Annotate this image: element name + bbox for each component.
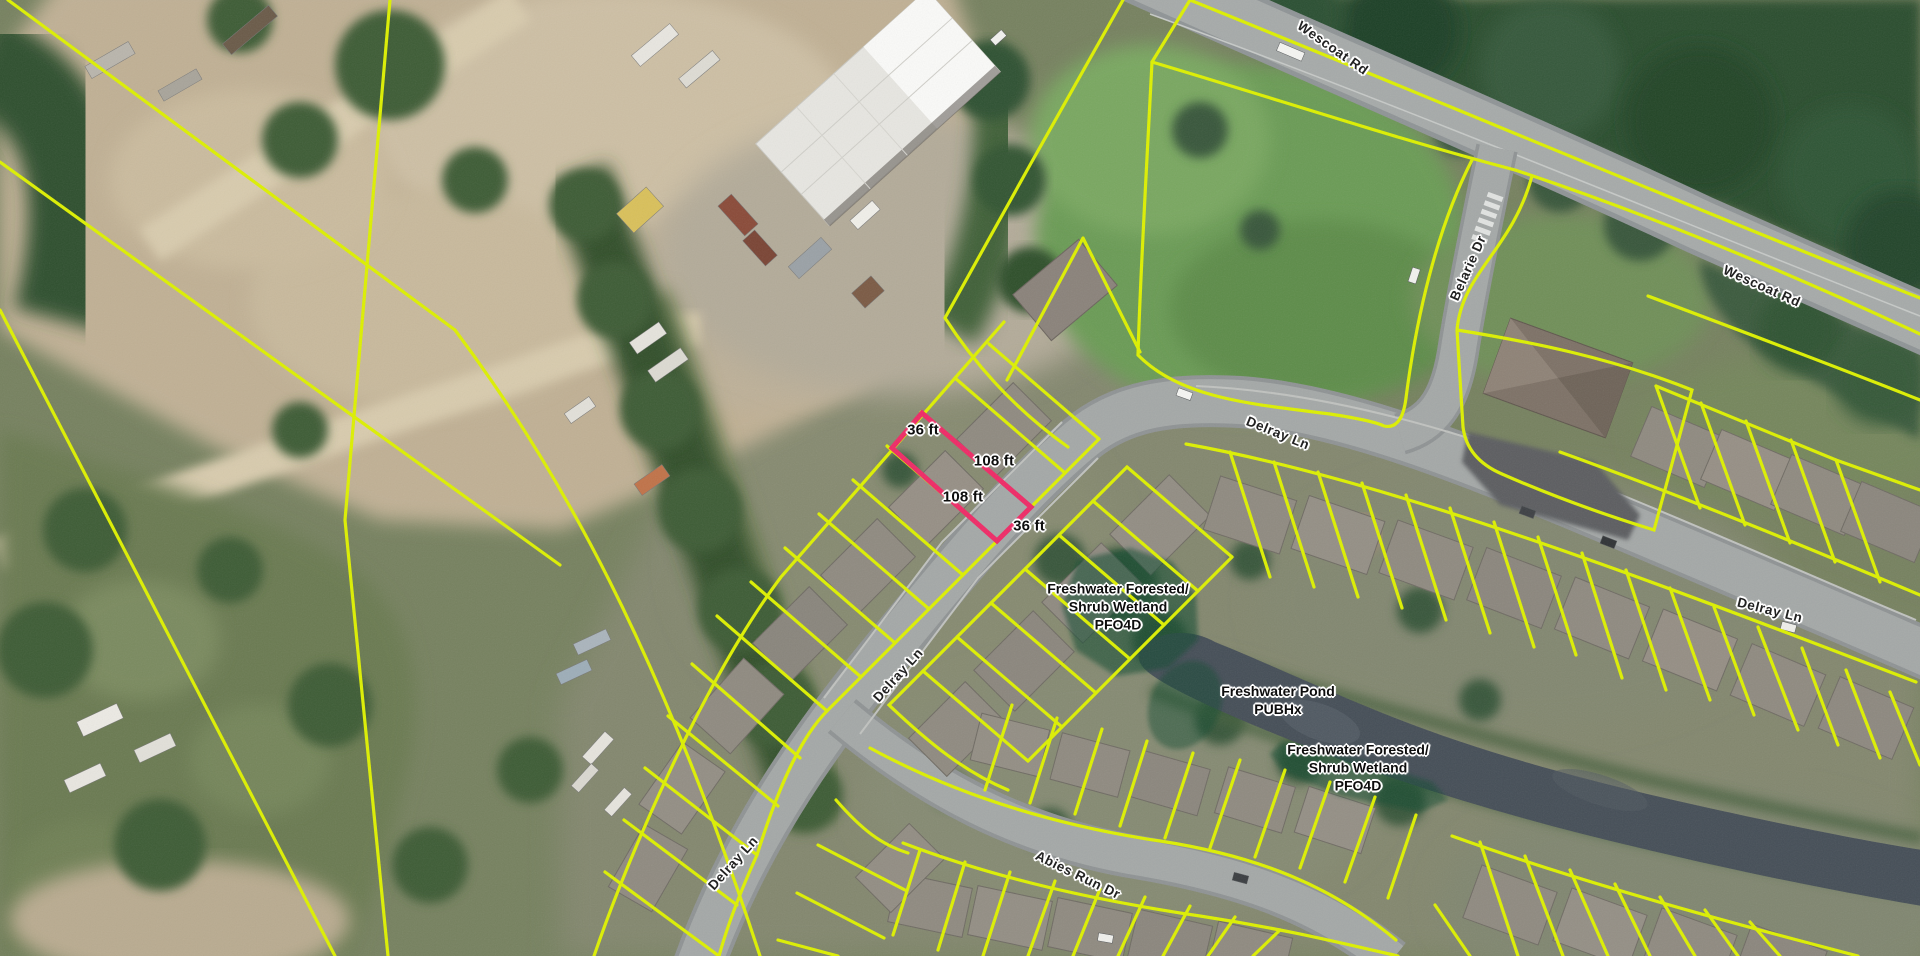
satellite-map[interactable] xyxy=(0,0,1920,956)
satellite-grain xyxy=(0,0,1920,956)
map-viewport[interactable]: Wescoat Rd Wescoat Rd Belarie Dr Delray … xyxy=(0,0,1920,956)
